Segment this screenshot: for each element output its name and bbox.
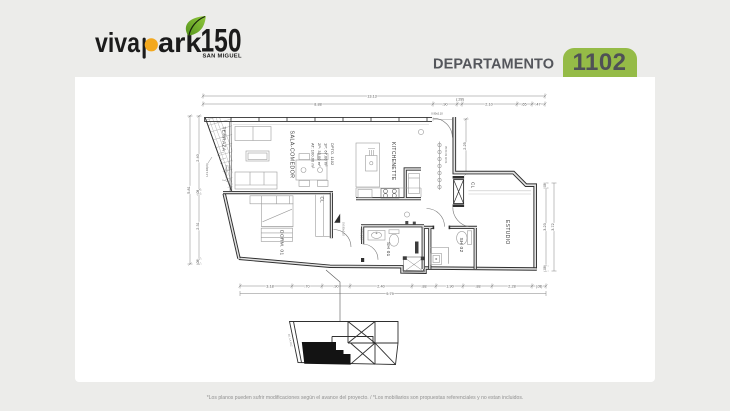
svg-text:.08: .08 [543, 183, 547, 188]
svg-text:.47: .47 [535, 102, 540, 106]
svg-text:2.10: 2.10 [485, 102, 492, 106]
svg-text:DPTO. 1102: DPTO. 1102 [330, 143, 335, 165]
svg-text:9.79: 9.79 [386, 292, 393, 296]
svg-text:CL: CL [471, 182, 476, 189]
svg-text:8.88: 8.88 [314, 102, 321, 106]
svg-text:2.31: 2.31 [196, 222, 200, 229]
svg-text:.90: .90 [442, 102, 447, 106]
svg-text:.70: .70 [304, 284, 309, 288]
svg-text:0.90x2.10: 0.90x2.10 [431, 112, 443, 116]
svg-text:(.08): (.08) [196, 259, 200, 266]
svg-text:S:0.90x2.10: S:0.90x2.10 [342, 222, 346, 236]
svg-text:(.08): (.08) [536, 284, 543, 288]
svg-text:2.25: 2.25 [463, 142, 467, 149]
svg-text:SALA-COMEDOR: SALA-COMEDOR [289, 131, 295, 179]
svg-text:2.40: 2.40 [377, 284, 384, 288]
svg-text:.88: .88 [421, 284, 426, 288]
svg-text:1P: 67.00 m²: 1P: 67.00 m² [324, 143, 329, 167]
svg-text:Alero: Alero [228, 165, 232, 172]
svg-text:CL: CL [320, 197, 325, 204]
svg-text:3.18: 3.18 [266, 284, 273, 288]
svg-text:1.90: 1.90 [446, 284, 453, 288]
svg-text:TERRAZA: TERRAZA [221, 127, 227, 152]
svg-text:ESTUDIO: ESTUDIO [504, 220, 510, 245]
svg-text:.08: .08 [196, 190, 200, 195]
svg-text:AT: 100.00 m²: AT: 100.00 m² [311, 143, 316, 169]
svg-text:5.81: 5.81 [187, 186, 191, 193]
svg-text:(.08): (.08) [543, 265, 547, 272]
svg-text:SH 01: SH 01 [386, 242, 391, 257]
svg-text:.90: .90 [333, 284, 338, 288]
svg-text:2P: 33.00 m²: 2P: 33.00 m² [317, 143, 322, 167]
svg-text:05 04 03 02 01: 05 04 03 02 01 [444, 146, 448, 164]
svg-text:13.13: 13.13 [367, 94, 377, 98]
svg-text:SH 02: SH 02 [458, 238, 464, 253]
svg-text:0.70x2.10: 0.70x2.10 [360, 229, 364, 241]
svg-text:(.28): (.28) [456, 98, 465, 102]
svg-text:DORM. 01: DORM. 01 [279, 230, 285, 255]
svg-text:3.23: 3.23 [543, 223, 547, 230]
svg-text:3.72: 3.72 [551, 223, 555, 230]
svg-text:H:1.10(m): H:1.10(m) [205, 163, 209, 176]
svg-text:.88: .88 [475, 284, 480, 288]
svg-text:2.40: 2.40 [196, 154, 200, 161]
svg-text:2.28: 2.28 [508, 284, 515, 288]
svg-text:.65: .65 [521, 102, 526, 106]
svg-text:KITCHENETTE: KITCHENETTE [390, 142, 396, 181]
